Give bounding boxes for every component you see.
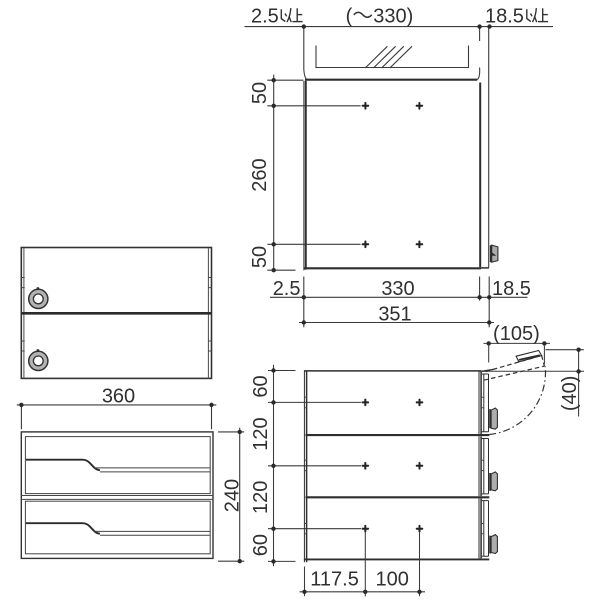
svg-text:351: 351 [378,303,411,325]
svg-text:260: 260 [249,158,271,191]
svg-text:18.5: 18.5 [485,6,524,28]
svg-text:50: 50 [249,246,271,268]
svg-text:117.5: 117.5 [310,569,359,591]
svg-text:(40): (40) [559,376,581,412]
svg-text:2.5: 2.5 [251,6,279,28]
svg-text:60: 60 [250,534,272,556]
svg-text:120: 120 [250,481,272,514]
svg-text:100: 100 [376,569,409,591]
svg-text:240: 240 [222,479,244,512]
svg-text:120: 120 [250,417,272,450]
svg-text:(: ( [346,6,353,28]
svg-text:360: 360 [102,385,135,407]
svg-text:(105): (105) [493,323,540,345]
svg-text:18.5: 18.5 [492,278,531,300]
svg-text:60: 60 [250,375,272,397]
svg-text:2.5: 2.5 [273,278,301,300]
svg-text:330): 330) [373,6,413,28]
svg-text:330: 330 [381,278,414,300]
svg-text:50: 50 [249,82,271,104]
